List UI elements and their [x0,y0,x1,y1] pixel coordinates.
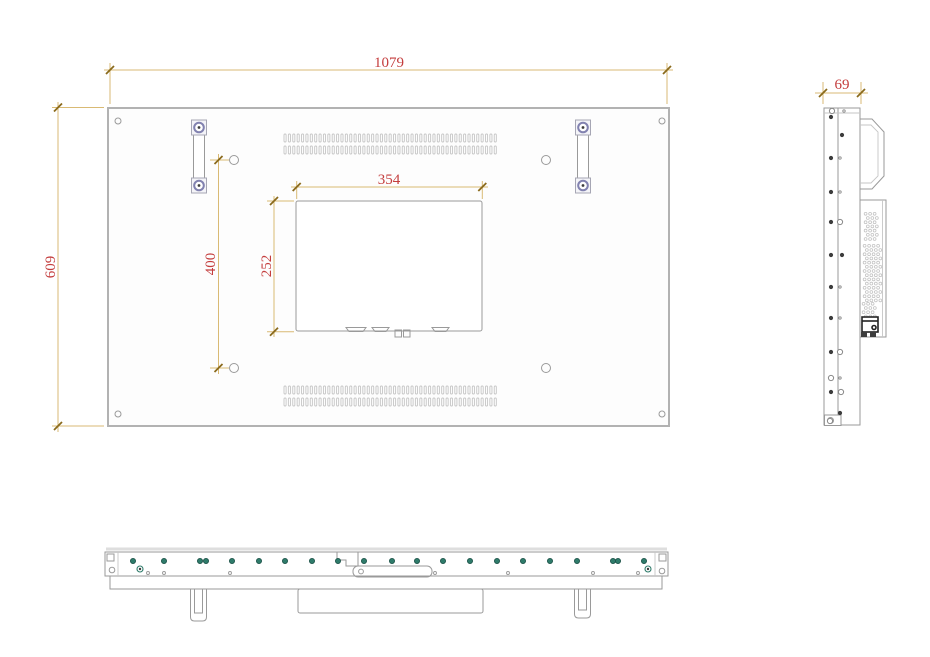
bottom-foot-left [191,589,207,621]
dim-vesa-hole-pitch-value: 400 [203,253,219,276]
bottom-foot-right [575,589,591,618]
dim-rear-width: 1079 [104,55,673,104]
screw-dot-icon [282,558,287,563]
handle-bracket-right [576,120,591,193]
screw-hole-icon [828,375,833,380]
screw-dot-icon [641,558,646,563]
screw-hole-icon [838,389,843,394]
screw-dot-icon [574,558,579,563]
screw-hole-icon [829,108,834,113]
screw-hole-icon [837,219,842,224]
screw-dot-icon [229,558,234,563]
screw-dot-icon [838,411,842,415]
side-handle [860,119,884,189]
screw-dot-icon [335,558,340,563]
drawing-canvas: 1079 609 354 252 [0,0,930,657]
screw-dot-icon [256,558,261,563]
ring-screw-icon [647,568,649,570]
screw-dot-icon [829,350,833,354]
screw-dot-icon [829,190,833,194]
technical-drawing: 1079 609 354 252 [0,0,930,657]
screw-dot-icon [829,285,833,289]
media-player-box [296,201,482,337]
screw-dot-icon [829,316,833,320]
screw-dot-icon [203,558,208,563]
dim-vesa-plate-height-value: 252 [259,255,275,278]
screw-hole-icon [827,418,832,423]
dim-rear-width-value: 1079 [374,55,404,71]
side-media-box [860,200,886,337]
ring-screw-icon [139,568,141,570]
bottom-bar-outline [105,552,668,576]
screw-dot-icon [829,390,833,394]
dim-rear-height: 609 [43,102,104,432]
screw-dot-icon [829,220,833,224]
rear-view: 1079 609 354 252 [43,55,673,432]
screw-dot-icon [829,115,833,119]
screw-dot-icon [840,133,844,137]
screw-dot-icon [197,558,202,563]
screw-dot-icon [414,558,419,563]
screw-dot-icon [615,558,620,563]
screw-dot-icon [389,558,394,563]
screw-dot-icon [840,253,844,257]
screw-dot-icon [440,558,445,563]
screw-dot-icon [520,558,525,563]
screw-dot-icon [829,253,833,257]
dim-rear-height-value: 609 [43,256,59,279]
bottom-media-box [298,589,483,613]
dim-side-depth: 69 [815,77,868,104]
screw-dot-icon [309,558,314,563]
dim-vesa-plate-width-value: 354 [378,172,401,188]
screw-dot-icon [130,558,135,563]
screw-dot-icon [361,558,366,563]
screw-dot-icon [829,156,833,160]
dim-side-depth-value: 69 [835,77,850,93]
screw-dot-icon [547,558,552,563]
screw-dot-icon [161,558,166,563]
screw-dot-icon [610,558,615,563]
bottom-flange [110,576,662,589]
side-view: 69 [815,77,886,426]
handle-bracket-left [192,120,207,193]
screw-dot-icon [494,558,499,563]
screw-dot-icon [467,558,472,563]
screw-hole-icon [837,349,842,354]
bottom-view [105,549,668,621]
